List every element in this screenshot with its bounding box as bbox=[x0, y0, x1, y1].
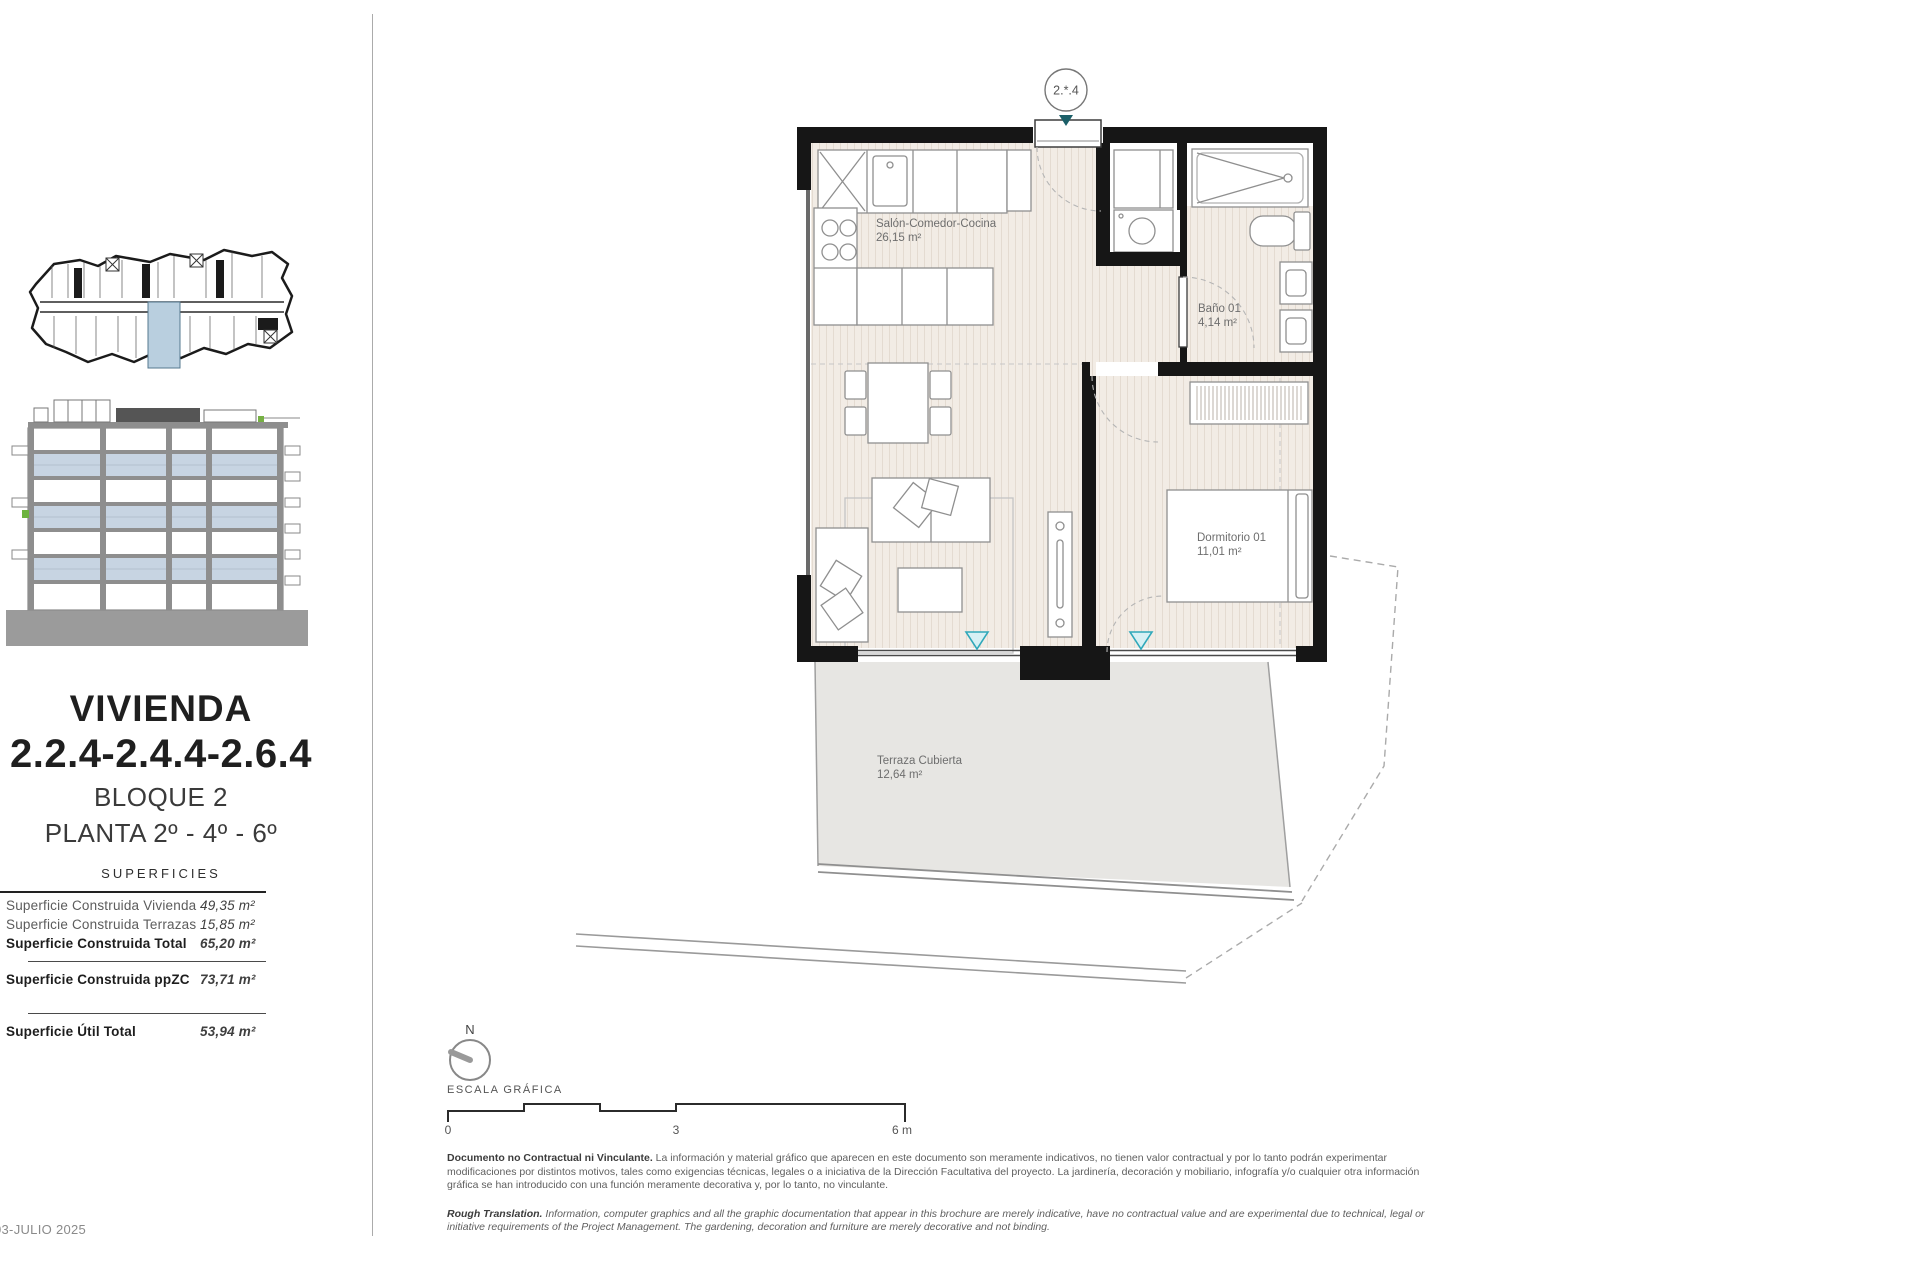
surface-label: Superficie Útil Total bbox=[6, 1024, 136, 1039]
table-row: Superficie Útil Total 53,94 m² bbox=[0, 1022, 266, 1041]
room-area: 12,64 m² bbox=[877, 769, 923, 781]
tv-panel bbox=[1048, 512, 1072, 637]
surface-label: Superficie Construida Vivienda bbox=[6, 898, 196, 913]
surface-label: Superficie Construida Total bbox=[6, 936, 187, 951]
unit-codes: 2.2.4-2.4.4-2.6.4 bbox=[0, 732, 322, 777]
key-plan-unit-highlight bbox=[148, 302, 180, 368]
surface-label: Superficie Construida Terrazas bbox=[6, 917, 196, 932]
unit-marker-label: 2.*.4 bbox=[1053, 84, 1079, 98]
building-elevation bbox=[6, 398, 308, 656]
surface-value: 15,85 m² bbox=[200, 917, 266, 932]
table-row: Superficie Construida Total 65,20 m² bbox=[0, 934, 266, 953]
table-row: Superficie Construida Terrazas 15,85 m² bbox=[0, 915, 266, 934]
surface-value: 65,20 m² bbox=[200, 936, 266, 951]
table-row: Superficie Construida Vivienda 49,35 m² bbox=[0, 896, 266, 915]
title-block: VIVIENDA 2.2.4-2.4.4-2.6.4 BLOQUE 2 PLAN… bbox=[0, 688, 322, 881]
north-needle-icon bbox=[451, 1052, 470, 1060]
surface-value: 49,35 m² bbox=[200, 898, 266, 913]
surfaces-table: Superficie Construida Vivienda 49,35 m² … bbox=[0, 891, 266, 1041]
floor-plan: 2.*.4 Salón-Comedor-Cocina 26,15 m² Baño… bbox=[560, 40, 1440, 1000]
north-arrow: N bbox=[436, 1016, 506, 1091]
date-stamp: 03-JULIO 2025 bbox=[0, 1222, 86, 1237]
disclaimer-en: Rough Translation. Information, computer… bbox=[447, 1208, 1447, 1235]
surfaces-header: SUPERFICIES bbox=[0, 866, 322, 881]
elevation-ground bbox=[6, 610, 308, 646]
room-name: Baño 01 bbox=[1198, 303, 1241, 315]
unit-marker: 2.*.4 bbox=[1045, 69, 1087, 126]
bathroom-door bbox=[1179, 277, 1187, 347]
unit-title: VIVIENDA bbox=[0, 688, 322, 730]
room-name: Salón-Comedor-Cocina bbox=[876, 218, 997, 230]
disclaimer-es-lead: Documento no Contractual ni Vinculante. bbox=[447, 1152, 653, 1164]
vertical-divider bbox=[372, 14, 373, 1236]
shower bbox=[1192, 149, 1308, 207]
brochure-page: VIVIENDA 2.2.4-2.4.4-2.6.4 BLOQUE 2 PLAN… bbox=[0, 0, 1920, 1280]
room-name: Dormitorio 01 bbox=[1197, 532, 1266, 544]
scale-tick-6: 6 m bbox=[892, 1123, 912, 1137]
party-wall bbox=[806, 190, 810, 575]
graphic-scale: 0 3 6 m bbox=[440, 1096, 920, 1138]
legal-disclaimer: Documento no Contractual ni Vinculante. … bbox=[447, 1152, 1447, 1250]
entrance-door bbox=[1035, 120, 1101, 147]
room-area: 4,14 m² bbox=[1198, 317, 1237, 329]
block-label: BLOQUE 2 bbox=[0, 782, 322, 813]
room-area: 26,15 m² bbox=[876, 232, 922, 244]
floors-label: PLANTA 2º - 4º - 6º bbox=[0, 818, 322, 849]
toilet bbox=[1250, 212, 1310, 250]
room-name: Terraza Cubierta bbox=[877, 755, 963, 767]
surface-value: 53,94 m² bbox=[200, 1024, 266, 1039]
laundry-appliances bbox=[1114, 150, 1173, 252]
scale-title: ESCALA GRÁFICA bbox=[447, 1084, 563, 1096]
disclaimer-es: Documento no Contractual ni Vinculante. … bbox=[447, 1152, 1447, 1193]
elevation-roof bbox=[34, 400, 300, 422]
north-label: N bbox=[465, 1022, 474, 1037]
disclaimer-en-lead: Rough Translation. bbox=[447, 1208, 542, 1220]
scale-tick-3: 3 bbox=[673, 1123, 680, 1137]
key-plan-thumbnail bbox=[18, 232, 303, 397]
scale-tick-0: 0 bbox=[445, 1123, 452, 1137]
table-divider bbox=[28, 961, 266, 962]
terrace bbox=[815, 662, 1294, 900]
surface-value: 73,71 m² bbox=[200, 972, 266, 987]
elevation-highlight-floors bbox=[30, 454, 281, 580]
disclaimer-en-body: Information, computer graphics and all t… bbox=[447, 1208, 1424, 1234]
room-area: 11,01 m² bbox=[1197, 546, 1242, 558]
elevation-green-mark bbox=[22, 510, 29, 518]
surface-label: Superficie Construida ppZC bbox=[6, 972, 190, 987]
wardrobe bbox=[1190, 382, 1308, 424]
scale-bar bbox=[448, 1104, 905, 1122]
table-row: Superficie Construida ppZC 73,71 m² bbox=[0, 970, 266, 989]
table-divider bbox=[28, 1013, 266, 1014]
